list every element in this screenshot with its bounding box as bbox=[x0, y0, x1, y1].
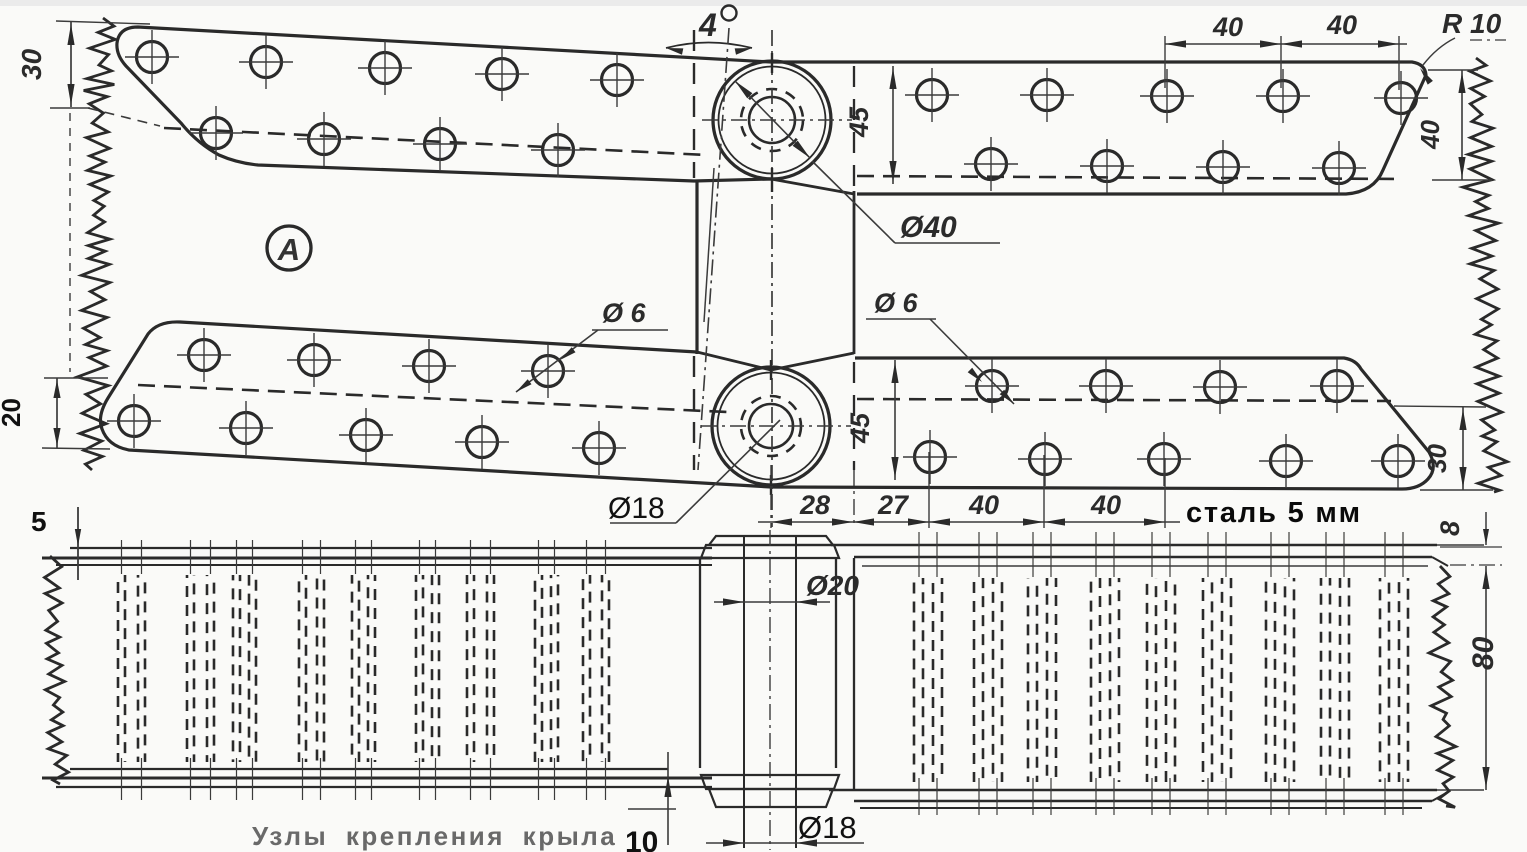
svg-text:40: 40 bbox=[1326, 10, 1357, 40]
svg-text:40: 40 bbox=[1090, 490, 1121, 520]
svg-text:40: 40 bbox=[968, 490, 999, 520]
svg-text:27: 27 bbox=[877, 490, 910, 520]
svg-text:80: 80 bbox=[1467, 636, 1500, 670]
svg-text:40: 40 bbox=[1415, 120, 1445, 150]
svg-text:30: 30 bbox=[16, 48, 47, 80]
svg-text:28: 28 bbox=[799, 490, 830, 520]
svg-text:40: 40 bbox=[1212, 12, 1243, 42]
svg-text:сталь 5 мм: сталь 5 мм bbox=[1186, 497, 1362, 529]
svg-text:Ø 6: Ø 6 bbox=[874, 288, 919, 318]
svg-text:30: 30 bbox=[1422, 444, 1452, 473]
svg-text:45: 45 bbox=[844, 106, 874, 138]
svg-text:8: 8 bbox=[1435, 521, 1465, 536]
svg-text:R 10: R 10 bbox=[1442, 8, 1502, 39]
svg-text:10: 10 bbox=[625, 826, 658, 852]
svg-text:Ø18: Ø18 bbox=[608, 492, 665, 525]
svg-text:A: A bbox=[277, 232, 300, 267]
svg-text:20: 20 bbox=[0, 398, 26, 427]
svg-text:Ø18: Ø18 bbox=[798, 810, 857, 845]
svg-text:Ø 6: Ø 6 bbox=[602, 298, 647, 328]
svg-text:Ø40: Ø40 bbox=[900, 211, 957, 244]
svg-text:5: 5 bbox=[31, 506, 47, 537]
svg-text:45: 45 bbox=[845, 412, 875, 444]
svg-text:4: 4 bbox=[698, 7, 717, 43]
svg-text:Узлы крепления крыла: Узлы крепления крыла bbox=[252, 821, 617, 851]
svg-text:Ø20: Ø20 bbox=[806, 570, 859, 601]
